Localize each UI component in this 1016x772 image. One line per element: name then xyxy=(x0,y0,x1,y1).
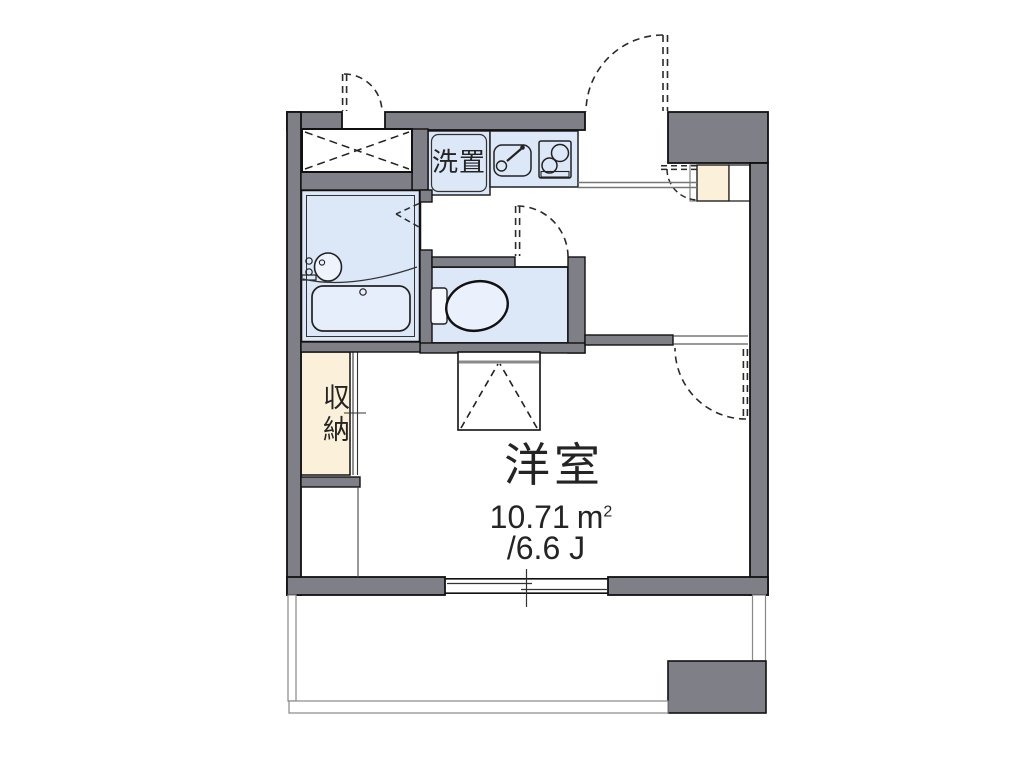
main-room-door-threshold xyxy=(673,336,748,344)
door-arc-top-left xyxy=(343,74,382,112)
storage-label: 収納 xyxy=(312,383,348,473)
washer-label: 洗置 xyxy=(428,131,490,195)
sliding-window-symbol xyxy=(445,569,608,607)
balcony-railing xyxy=(289,701,668,713)
main-room-tatami: /6.6 J xyxy=(451,532,641,566)
bathtub-icon xyxy=(312,286,410,331)
area-unit-exponent: 2 xyxy=(603,503,612,520)
floor-plan-drawing xyxy=(0,0,1016,772)
crossed-box-icon xyxy=(302,129,412,172)
door-arc-main-room xyxy=(675,348,747,419)
entry-shoe-cabinet xyxy=(690,165,752,201)
balcony-partition-block xyxy=(668,661,766,713)
door-arc-entrance xyxy=(586,35,668,112)
balcony xyxy=(288,595,766,713)
door-arc-toilet xyxy=(516,206,568,257)
floor-plan: 洋室 10.71m2 /6.6 J 収納 洗置 xyxy=(0,0,1016,772)
main-room-label: 洋室 xyxy=(466,441,642,489)
entry-step-edge xyxy=(578,183,697,188)
folding-door-box xyxy=(458,352,540,430)
